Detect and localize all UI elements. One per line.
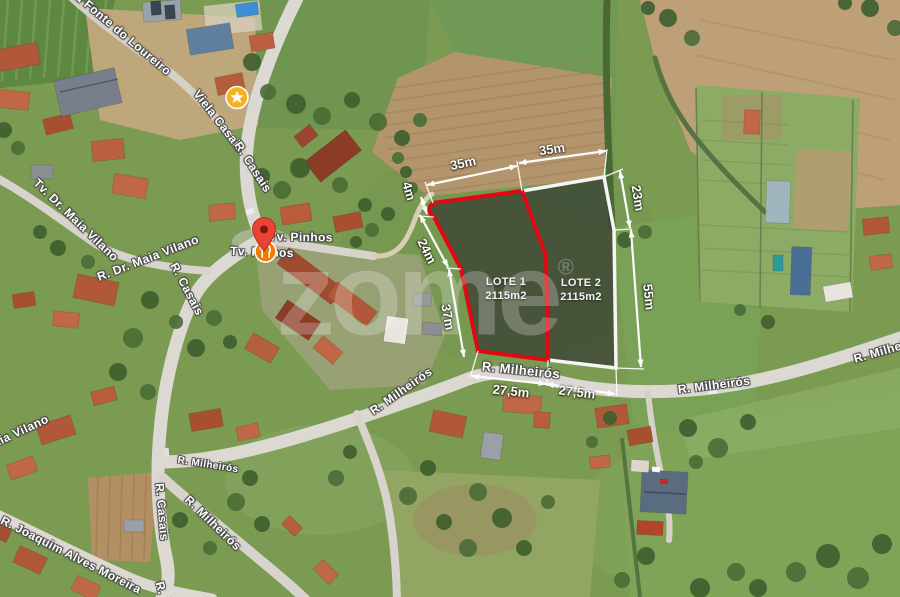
pin-dot xyxy=(260,226,268,234)
satellite-map: zome® la Fonte do Loureiro Viela Casais … xyxy=(0,0,900,597)
markers-layer xyxy=(0,0,900,597)
star-marker[interactable] xyxy=(226,87,248,109)
